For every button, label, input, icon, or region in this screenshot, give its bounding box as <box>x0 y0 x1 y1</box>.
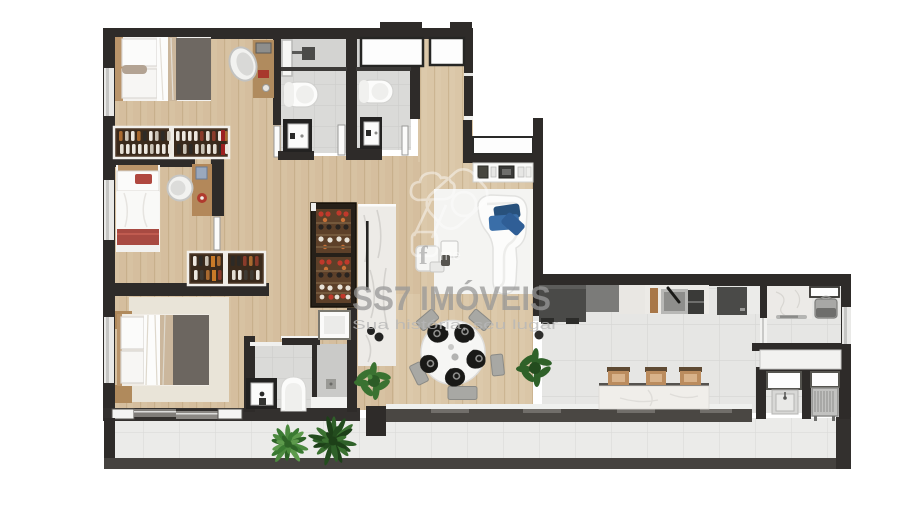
svg-text:f: f <box>419 241 428 270</box>
svg-text:Sua história, seu lugar: Sua história, seu lugar <box>352 317 559 332</box>
svg-text:me: me <box>440 247 461 264</box>
svg-text:SS7 IMÓVEIS: SS7 IMÓVEIS <box>352 280 551 318</box>
